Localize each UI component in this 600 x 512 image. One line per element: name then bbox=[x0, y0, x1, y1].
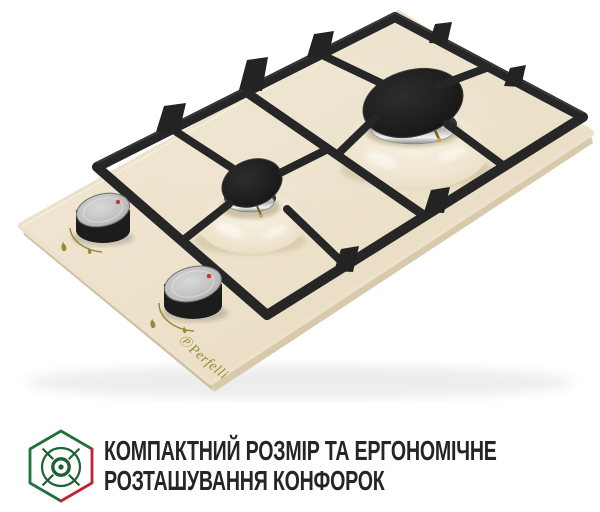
product-shadow bbox=[25, 365, 575, 399]
knob-indicator-dot bbox=[207, 274, 212, 279]
page: Ⓟ Perfelli КОМПАКТНИЙ РОЗМІР ТА ЕРГОНОМІ… bbox=[0, 0, 600, 512]
gas-hob-image: Ⓟ Perfelli bbox=[0, 0, 600, 420]
knob-indicator-dot bbox=[116, 200, 120, 204]
product-photo: Ⓟ Perfelli bbox=[0, 0, 600, 420]
caption-bar: КОМПАКТНИЙ РОЗМІР ТА ЕРГОНОМІЧНЕ РОЗТАШУ… bbox=[0, 420, 600, 512]
caption-text: КОМПАКТНИЙ РОЗМІР ТА ЕРГОНОМІЧНЕ РОЗТАШУ… bbox=[104, 436, 497, 496]
caption-line-2: РОЗТАШУВАННЯ КОНФОРОК bbox=[104, 466, 497, 496]
burner-glyph bbox=[42, 448, 80, 486]
caption-line-1: КОМПАКТНИЙ РОЗМІР ТА ЕРГОНОМІЧНЕ bbox=[104, 436, 497, 466]
hexagon-burner-icon bbox=[26, 428, 96, 504]
